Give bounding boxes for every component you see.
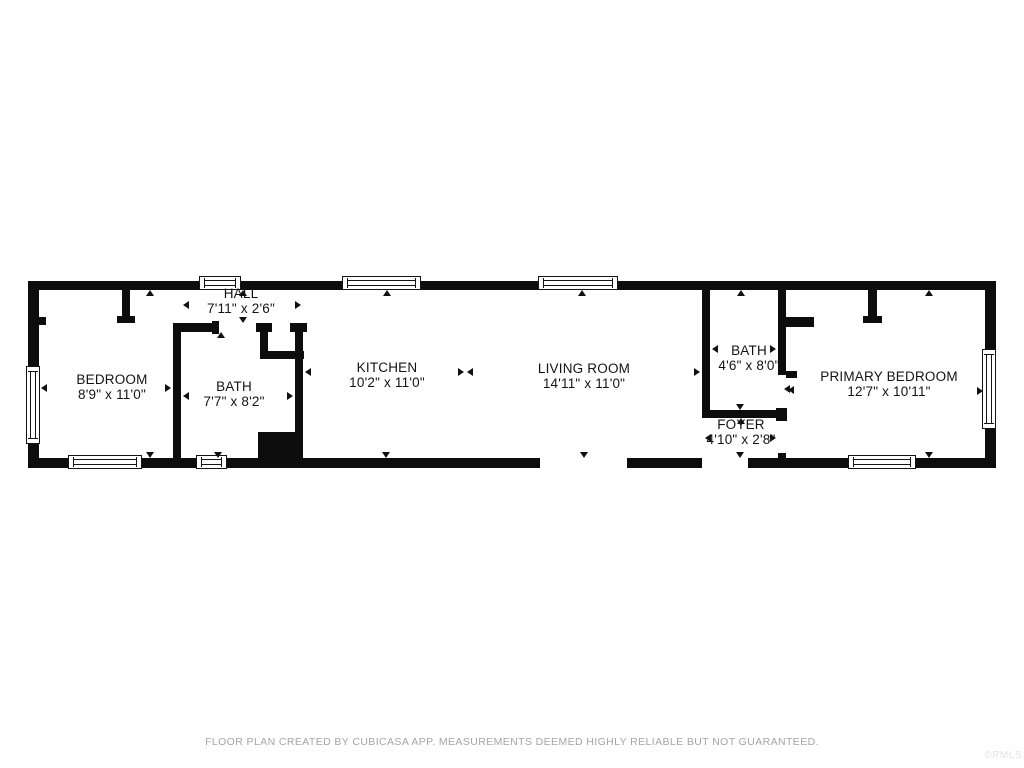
room-dimensions: 10'2" x 11'0" <box>349 375 425 390</box>
window <box>982 349 996 429</box>
window-end-tick <box>73 457 74 467</box>
room-label: FOYER4'10" x 2'8" <box>707 417 776 447</box>
window-end-tick <box>415 278 416 288</box>
room-label: HALL7'11" x 2'6" <box>207 286 275 316</box>
window-pane-line <box>348 280 415 286</box>
wall-segment <box>778 453 786 460</box>
dimension-arrow <box>295 301 301 309</box>
window <box>342 276 421 290</box>
room-dimensions: 4'6" x 8'0" <box>718 358 779 373</box>
window-end-tick <box>136 457 137 467</box>
dimension-arrow <box>925 452 933 458</box>
door-opening <box>540 458 627 468</box>
room-label: KITCHEN10'2" x 11'0" <box>349 360 425 390</box>
wall-segment <box>786 371 797 378</box>
dimension-arrow <box>217 332 225 338</box>
room-dimensions: 8'9" x 11'0" <box>76 387 147 402</box>
footer-disclaimer: FLOOR PLAN CREATED BY CUBICASA APP. MEAS… <box>0 736 1024 748</box>
dimension-arrow <box>694 368 700 376</box>
wall-segment <box>295 323 303 432</box>
dimension-arrow <box>977 387 983 395</box>
room-dimensions: 7'11" x 2'6" <box>207 301 275 316</box>
window-end-tick <box>201 457 202 467</box>
window-end-tick <box>28 371 38 372</box>
window <box>26 366 40 444</box>
room-name: PRIMARY BEDROOM <box>820 369 958 384</box>
wall-segment <box>702 290 710 418</box>
room-label: PRIMARY BEDROOM12'7" x 10'11" <box>820 369 958 399</box>
window-pane-line <box>30 372 36 438</box>
wall-segment <box>258 432 303 458</box>
dimension-arrow <box>41 384 47 392</box>
room-label: BATH4'6" x 8'0" <box>718 343 779 373</box>
room-name: BEDROOM <box>76 372 147 387</box>
dimension-arrow <box>737 290 745 296</box>
window-pane-line <box>854 459 910 465</box>
window <box>848 455 916 469</box>
wall-segment <box>173 323 181 458</box>
room-name: BATH <box>718 343 779 358</box>
wall-segment <box>786 317 814 327</box>
room-label: BEDROOM8'9" x 11'0" <box>76 372 147 402</box>
floorplan-canvas: BEDROOM8'9" x 11'0"HALL7'11" x 2'6"BATH7… <box>0 0 1024 768</box>
room-label: BATH7'7" x 8'2" <box>203 379 264 409</box>
wall-segment <box>868 290 877 317</box>
wall-segment <box>117 316 135 323</box>
room-dimensions: 7'7" x 8'2" <box>203 394 264 409</box>
dimension-arrow <box>383 290 391 296</box>
dimension-arrow <box>305 368 311 376</box>
wall-segment <box>863 316 882 323</box>
window-pane-line <box>74 459 136 465</box>
dimension-arrow <box>736 452 744 458</box>
dimension-arrow <box>578 290 586 296</box>
window-pane-line <box>544 280 612 286</box>
room-name: HALL <box>207 286 275 301</box>
wall-segment <box>122 290 130 317</box>
window-end-tick <box>221 457 222 467</box>
dimension-arrow <box>165 384 171 392</box>
wall-segment <box>776 408 787 421</box>
window <box>538 276 618 290</box>
window-end-tick <box>853 457 854 467</box>
window-end-tick <box>910 457 911 467</box>
dimension-arrow <box>239 317 247 323</box>
window-end-tick <box>984 354 994 355</box>
room-dimensions: 14'11" x 11'0" <box>538 376 630 391</box>
dimension-arrow <box>146 452 154 458</box>
window-end-tick <box>28 438 38 439</box>
dimension-arrow <box>146 290 154 296</box>
room-name: BATH <box>203 379 264 394</box>
room-name: FOYER <box>707 417 776 432</box>
dimension-arrow <box>467 368 473 376</box>
dimension-arrow <box>214 452 222 458</box>
window-end-tick <box>984 423 994 424</box>
room-dimensions: 4'10" x 2'8" <box>707 432 776 447</box>
dimension-arrow <box>458 368 464 376</box>
window-end-tick <box>204 278 205 288</box>
window <box>196 455 227 469</box>
room-name: KITCHEN <box>349 360 425 375</box>
dimension-arrow <box>183 392 189 400</box>
window-end-tick <box>543 278 544 288</box>
window-pane-line <box>986 355 992 423</box>
room-dimensions: 12'7" x 10'11" <box>820 384 958 399</box>
dimension-arrow <box>925 290 933 296</box>
dimension-arrow <box>788 386 794 394</box>
room-name: LIVING ROOM <box>538 361 630 376</box>
watermark: ©RMLS <box>984 750 1022 761</box>
window-pane-line <box>202 459 221 465</box>
door-opening <box>702 458 748 468</box>
room-label: LIVING ROOM14'11" x 11'0" <box>538 361 630 391</box>
wall-segment <box>28 281 996 290</box>
dimension-arrow <box>736 404 744 410</box>
wall-segment <box>39 317 46 325</box>
dimension-arrow <box>287 392 293 400</box>
window-end-tick <box>347 278 348 288</box>
window-end-tick <box>612 278 613 288</box>
dimension-arrow <box>382 452 390 458</box>
dimension-arrow <box>580 452 588 458</box>
window <box>68 455 142 469</box>
dimension-arrow <box>712 345 718 353</box>
dimension-arrow <box>183 301 189 309</box>
